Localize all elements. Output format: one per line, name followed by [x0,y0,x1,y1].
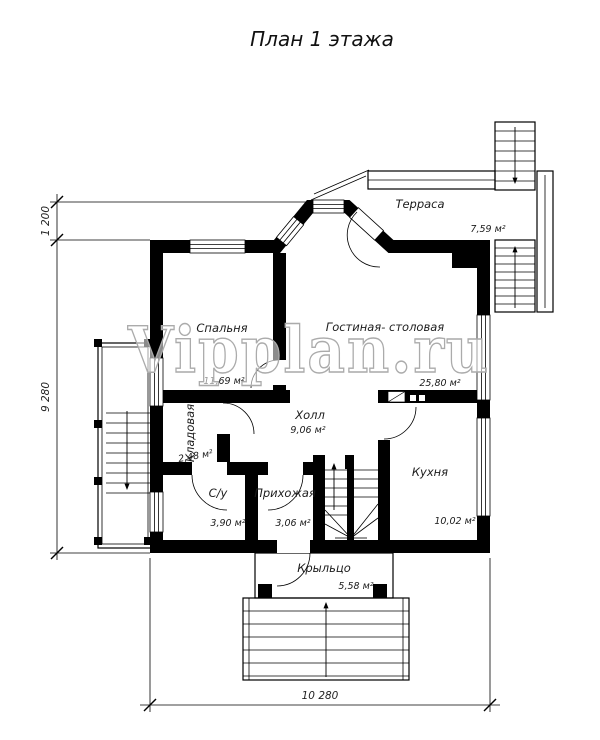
room-area-terrace: 7,59 м² [470,224,505,235]
terrace-exterior [311,122,553,312]
terrace-door-opening [350,208,384,240]
window [150,492,163,532]
room-label-hall: Холл [294,408,325,422]
floor-plan-page: 1 200 9 280 10 280 [0,0,600,740]
page-title: План 1 этажа [250,27,394,51]
storeroom-door-arc [223,403,254,434]
room-label-terrace: Терраса [395,197,444,211]
dimension-left-side: 9 280 [40,382,52,412]
stair-divider-wall [347,468,354,540]
room-area-wc: 3,90 м² [210,518,245,529]
corner-chimney-block [452,240,490,268]
window [313,200,344,213]
kitchen-door-arc [384,407,416,439]
window [190,240,245,253]
terrace-railing-diagonal [311,176,366,200]
room-area-entry: 3,06 м² [275,518,310,529]
room-area-hall: 9,06 м² [290,425,325,436]
dimension-left-top: 1 200 [40,206,52,236]
room-area-kitchen: 10,02 м² [434,516,475,527]
room-label-entry: Прихожая [254,486,316,500]
entry-door-opening [268,462,303,475]
room-label-kitchen: Кухня [412,465,448,479]
floor-plan-canvas: 1 200 9 280 10 280 [0,0,600,740]
room-label-wc: С/у [209,486,228,500]
window [477,418,490,516]
watermark: Vipplan.ru [127,313,490,388]
room-area-porch: 5,58 м² [338,581,373,592]
dimension-bottom: 10 280 [302,690,339,702]
room-label-porch: Крыльцо [297,561,351,575]
porch-door-opening [277,540,310,553]
wc-door-opening [192,462,227,475]
